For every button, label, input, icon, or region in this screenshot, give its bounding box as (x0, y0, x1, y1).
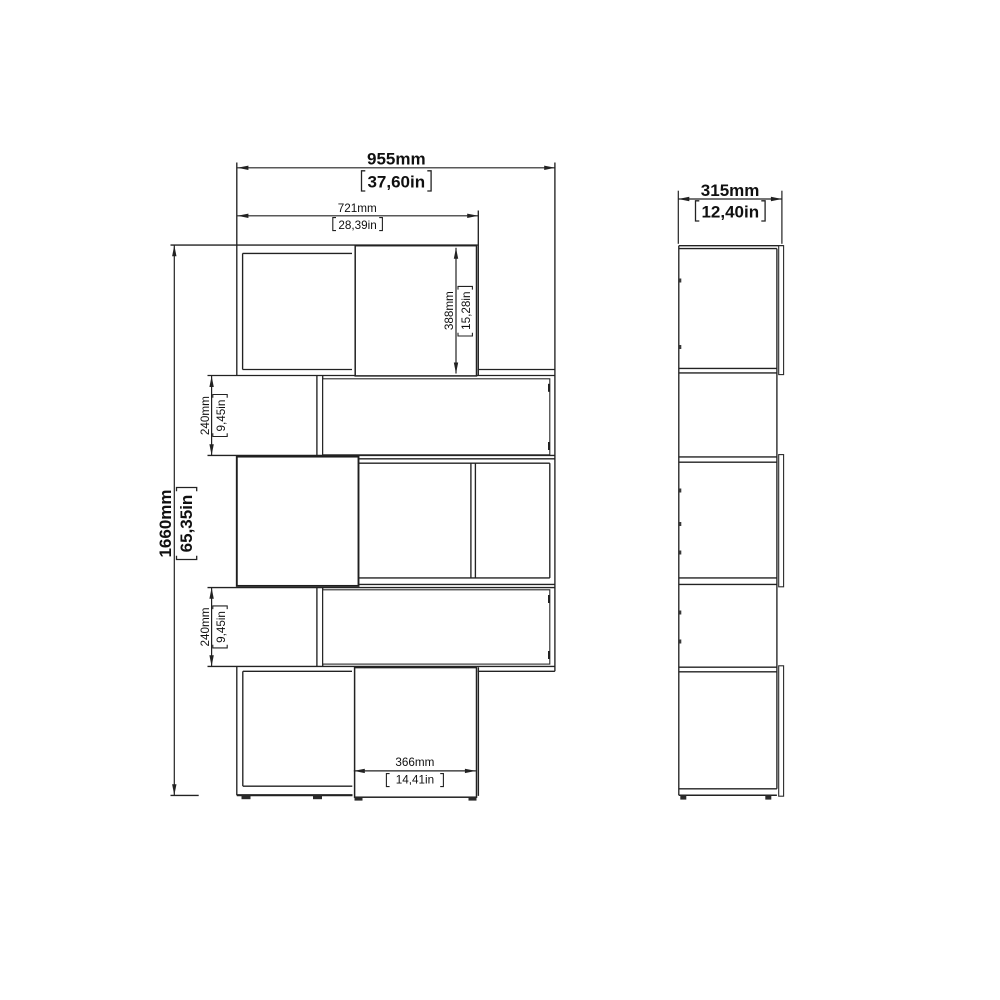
svg-text:240mm: 240mm (199, 396, 212, 435)
svg-text:14,41in: 14,41in (396, 774, 434, 787)
svg-text:9,45in: 9,45in (215, 400, 228, 432)
svg-text:240mm: 240mm (199, 608, 212, 647)
svg-text:1660mm: 1660mm (156, 489, 175, 557)
svg-text:388mm: 388mm (443, 291, 456, 330)
svg-text:9,45in: 9,45in (215, 611, 228, 643)
svg-text:955mm: 955mm (367, 150, 426, 169)
svg-text:12,40in: 12,40in (701, 202, 759, 221)
svg-text:28,39in: 28,39in (338, 219, 376, 232)
svg-text:721mm: 721mm (338, 202, 377, 215)
svg-text:15,28in: 15,28in (460, 292, 473, 330)
svg-text:65,35in: 65,35in (177, 495, 196, 553)
svg-text:366mm: 366mm (395, 756, 434, 769)
svg-text:37,60in: 37,60in (367, 172, 425, 191)
svg-text:315mm: 315mm (701, 181, 760, 200)
